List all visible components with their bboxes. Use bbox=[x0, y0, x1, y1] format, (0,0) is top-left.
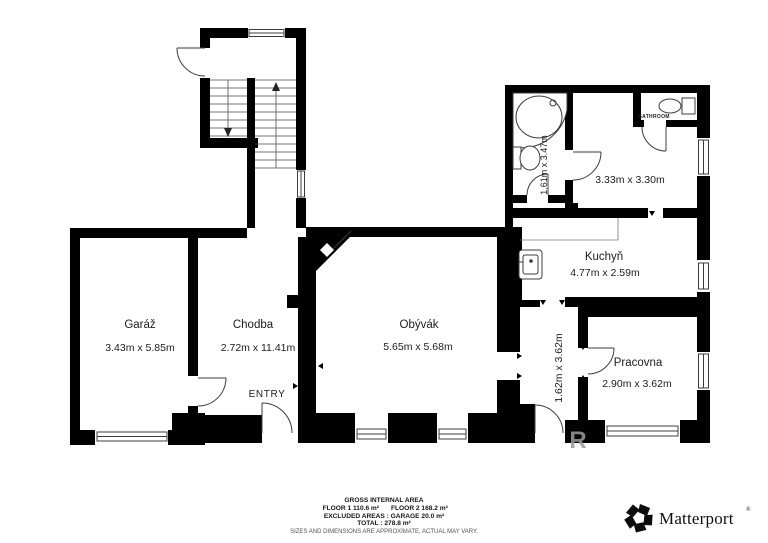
footer-floor1: FLOOR 1 110.6 m² bbox=[323, 505, 380, 512]
room-dims-obyvak: 5.65m x 5.68m bbox=[383, 341, 453, 353]
room-dims-bathroom: 3.33m x 3.30m bbox=[595, 174, 665, 186]
room-label-bathroom: BATHROOM bbox=[638, 114, 669, 120]
registered-mark: ® bbox=[746, 506, 751, 513]
toilet-wc bbox=[659, 98, 695, 114]
kitchen-sink bbox=[519, 250, 542, 279]
footer-total: TOTAL : 278.8 m² bbox=[357, 520, 411, 527]
room-dims-chodba: 2.72m x 11.41m bbox=[221, 342, 296, 354]
room-dims-garaz: 3.43m x 5.85m bbox=[105, 342, 175, 354]
toilet bbox=[513, 146, 540, 170]
wc-niche-door bbox=[642, 127, 666, 151]
room-dims-pracovna: 2.90m x 3.62m bbox=[602, 378, 672, 390]
footer-floor2: FLOOR 2 168.2 m² bbox=[391, 505, 449, 512]
room-label-garaz: Garáž bbox=[124, 319, 156, 331]
footer-disclaimer: SIZES AND DIMENSIONS ARE APPROXIMATE, AC… bbox=[290, 529, 478, 535]
footer-excluded: EXCLUDED AREAS : GARAGE 20.0 m² bbox=[324, 513, 445, 520]
room-dims-bath-hall: 1.61m x 3.47m bbox=[539, 135, 549, 195]
room-label-pracovna: Pracovna bbox=[614, 357, 663, 369]
entry-door bbox=[262, 403, 292, 433]
footer: GROSS INTERNAL AREA FLOOR 1 110.6 m² FLO… bbox=[290, 497, 478, 535]
corridor-exit-door bbox=[535, 405, 563, 433]
room-dims-corridor: 1.62m x 3.62m bbox=[553, 333, 565, 403]
floorplan-page: Garáž 3.43m x 5.85m Chodba 2.72m x 11.41… bbox=[0, 0, 768, 543]
matterport-logo: Matterport ® bbox=[622, 503, 751, 536]
matterport-wordmark: Matterport bbox=[659, 509, 734, 528]
room-label-chodba: Chodba bbox=[233, 319, 274, 331]
room-dims-kuchyn: 4.77m x 2.59m bbox=[570, 267, 640, 279]
pracovna-door bbox=[588, 348, 614, 374]
footer-title: GROSS INTERNAL AREA bbox=[344, 497, 423, 504]
kitchen-counter bbox=[520, 218, 618, 240]
garage-door bbox=[198, 378, 226, 406]
entry-label: ENTRY bbox=[249, 389, 286, 400]
matterport-pinwheel-icon bbox=[622, 503, 656, 536]
stairs-up-arrow bbox=[272, 82, 280, 91]
exterior-stair-door bbox=[177, 48, 205, 76]
watermark-letter: R bbox=[569, 427, 586, 454]
room-label-obyvak: Obývák bbox=[400, 319, 439, 331]
floor-plan-canvas: Garáž 3.43m x 5.85m Chodba 2.72m x 11.41… bbox=[0, 0, 768, 543]
room-label-kuchyn: Kuchyň bbox=[585, 251, 623, 263]
